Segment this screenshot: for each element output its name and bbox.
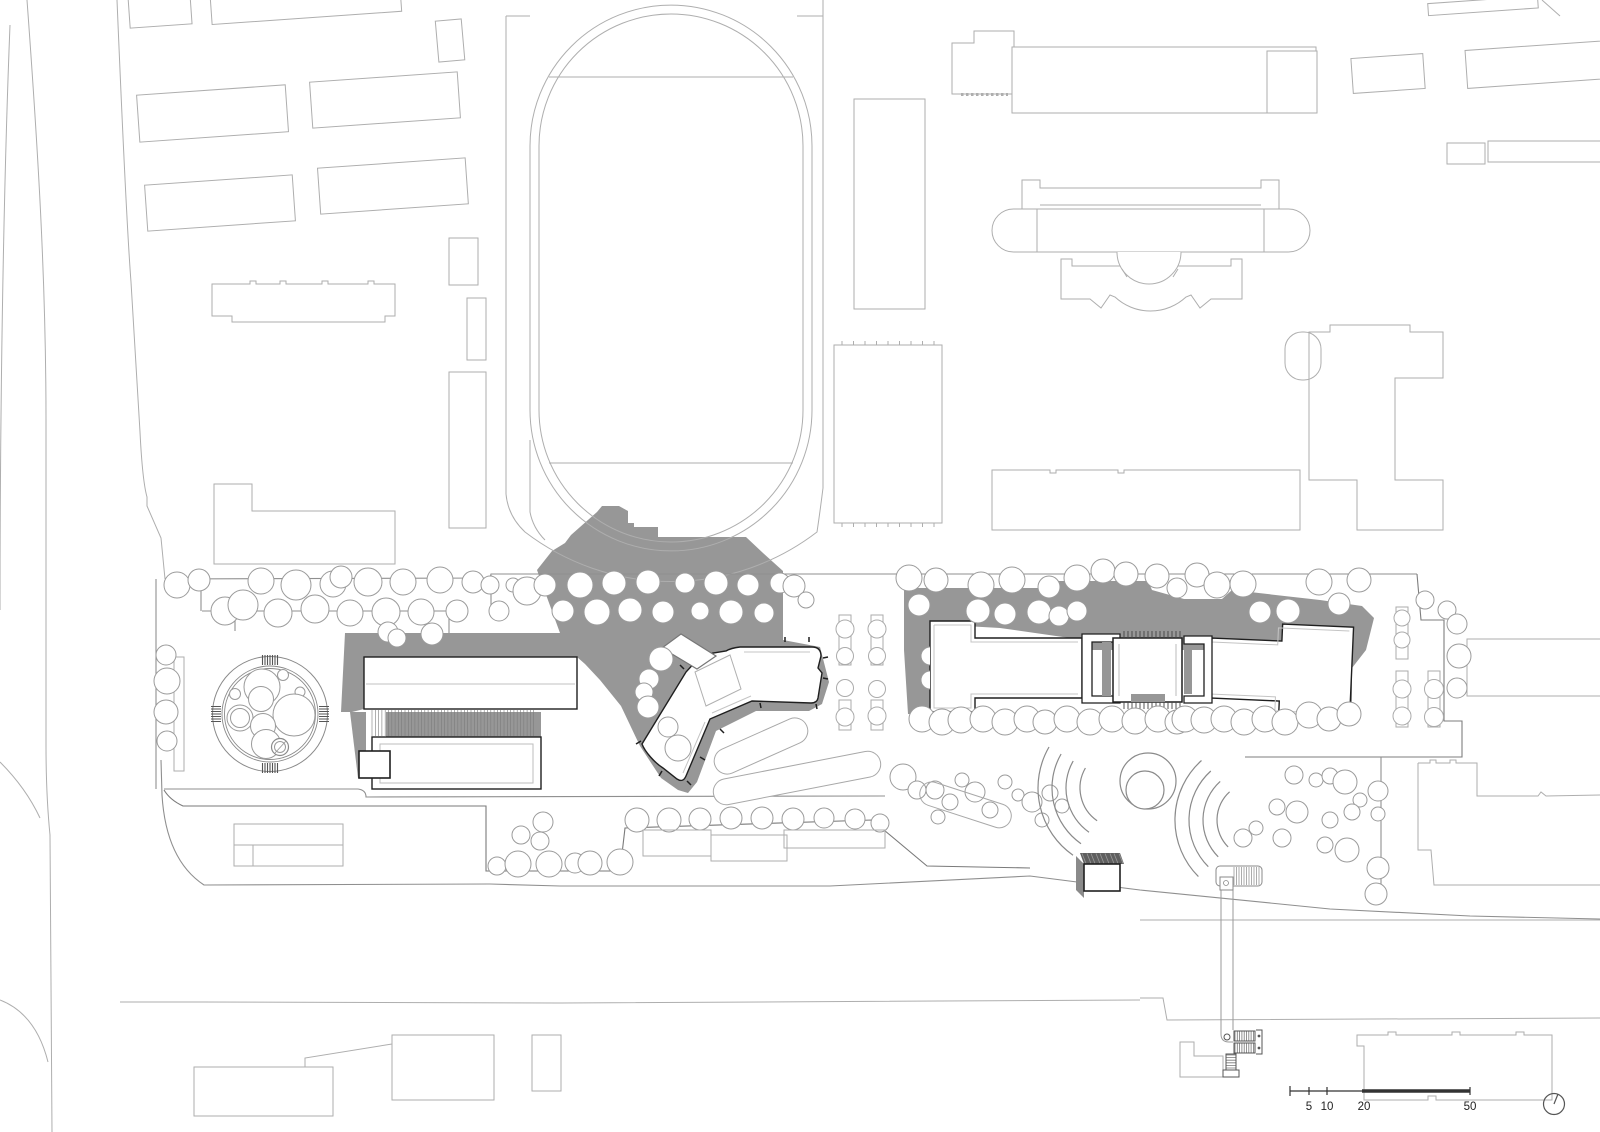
- svg-text:50: 50: [1464, 1101, 1477, 1113]
- svg-text:10: 10: [1321, 1101, 1334, 1113]
- svg-text:20: 20: [1358, 1101, 1371, 1113]
- svg-text:5: 5: [1306, 1101, 1312, 1113]
